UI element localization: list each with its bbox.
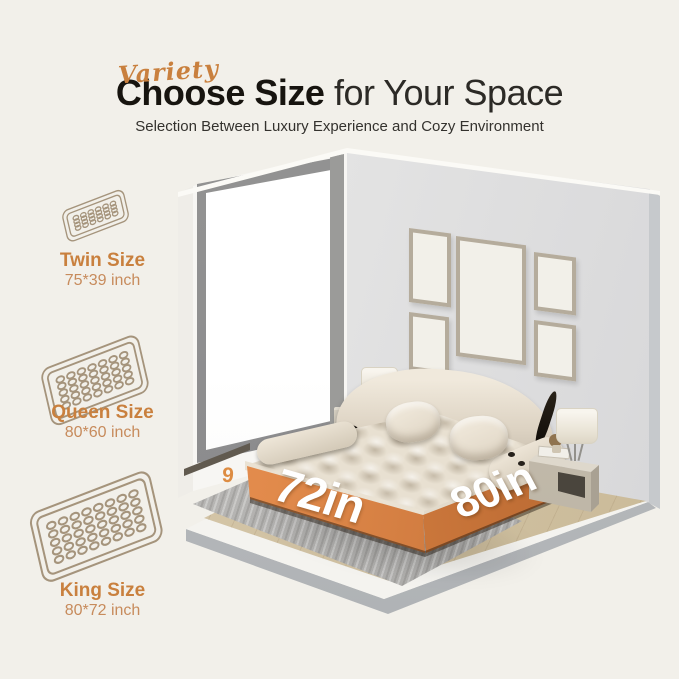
page-title: Choose Size for Your Space xyxy=(0,72,679,114)
picture-frame-large xyxy=(456,236,526,365)
right-lamp-shade xyxy=(556,408,598,444)
king-mattress-icon xyxy=(26,472,180,576)
product-infographic: Variety Choose Size for Your Space Selec… xyxy=(0,0,679,679)
plant-pot xyxy=(552,445,561,453)
size-dimensions: 80*72 inch xyxy=(25,601,180,620)
height-dimension-digit: 9 xyxy=(221,464,235,489)
picture-frame-small-1 xyxy=(409,228,451,308)
picture-frame-small-2 xyxy=(409,312,449,375)
title-light: for Your Space xyxy=(324,72,563,113)
picture-frame-small-4 xyxy=(534,320,576,382)
size-option-twin: Twin Size 75*39 inch xyxy=(25,250,180,290)
page-subtitle: Selection Between Luxury Experience and … xyxy=(0,118,679,135)
size-name: King Size xyxy=(25,580,180,601)
size-name: Twin Size xyxy=(25,250,180,271)
size-option-king: King Size 80*72 inch xyxy=(25,580,180,620)
twin-mattress-icon xyxy=(40,180,160,248)
size-dimensions: 75*39 inch xyxy=(25,271,180,290)
picture-frame-small-3 xyxy=(534,252,576,316)
size-dimensions: 80*60 inch xyxy=(25,423,180,442)
size-option-queen: Queen Size 80*60 inch xyxy=(25,402,180,442)
size-name: Queen Size xyxy=(25,402,180,423)
